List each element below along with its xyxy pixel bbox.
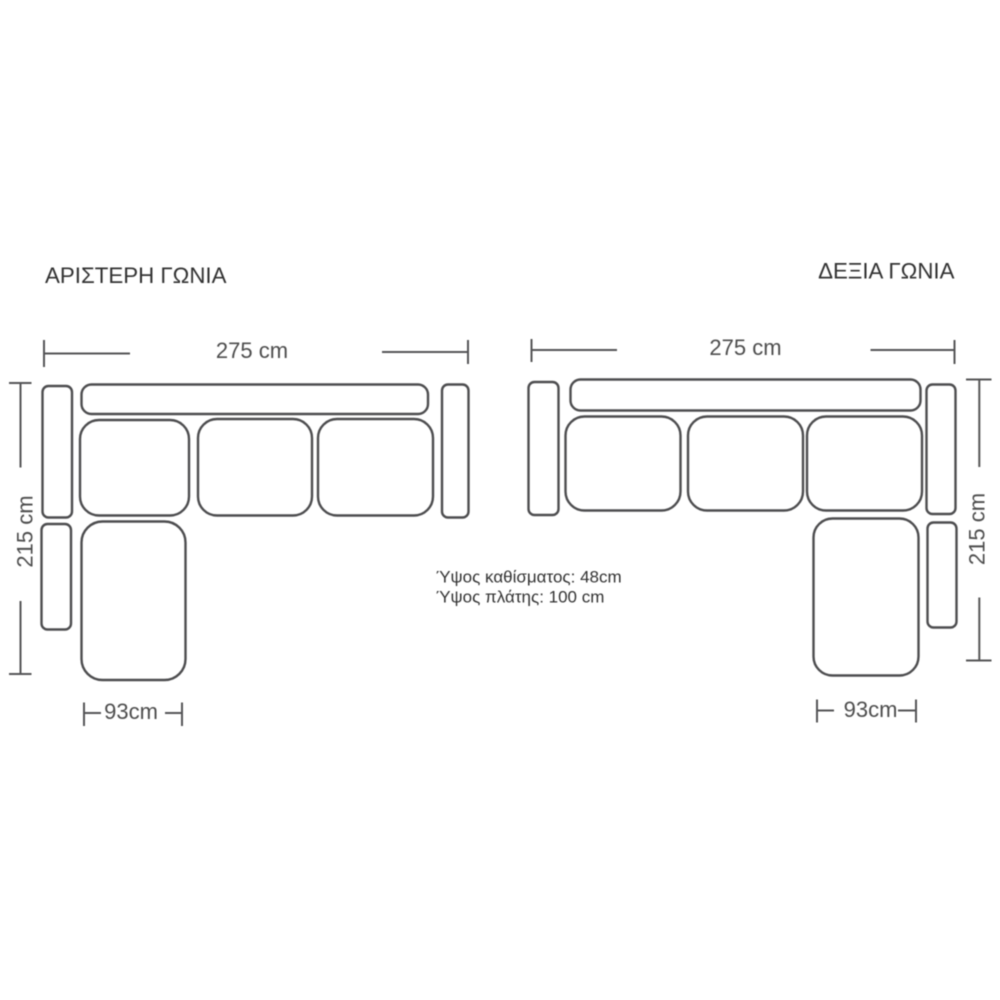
- svg-text:93cm: 93cm: [104, 699, 158, 724]
- svg-text:275 cm: 275 cm: [709, 335, 781, 360]
- svg-text:215 cm: 215 cm: [13, 495, 38, 567]
- svg-text:Ύψος καθίσματος: 48cm: Ύψος καθίσματος: 48cm: [436, 568, 622, 587]
- svg-text:215 cm: 215 cm: [965, 493, 990, 565]
- svg-text:Ύψος πλάτης: 100 cm: Ύψος πλάτης: 100 cm: [436, 587, 604, 606]
- svg-text:93cm: 93cm: [844, 697, 898, 722]
- svg-text:275 cm: 275 cm: [216, 338, 288, 363]
- svg-text:ΑΡΙΣΤΕΡΗ ΓΩΝΙΑ: ΑΡΙΣΤΕΡΗ ΓΩΝΙΑ: [45, 263, 227, 288]
- svg-text:ΔΕΞΙΑ ΓΩΝΙΑ: ΔΕΞΙΑ ΓΩΝΙΑ: [818, 259, 955, 284]
